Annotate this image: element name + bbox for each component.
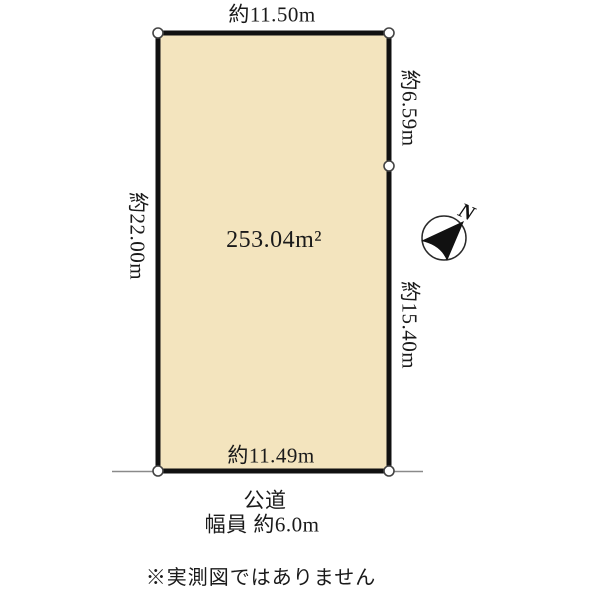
area-label: 253.04m² (226, 228, 322, 252)
top-dimension-label: 約11.50m (228, 5, 315, 26)
boundary-point-right-mid (384, 161, 394, 171)
road-name-label: 公道 (244, 491, 287, 512)
right-upper-dimension-label: 約6.59m (399, 69, 420, 146)
boundary-point-top-left (153, 28, 163, 38)
boundary-point-bottom-left (153, 466, 163, 476)
boundary-point-bottom-right (384, 466, 394, 476)
land-plot-diagram: N 約11.50m 約22.00m 約6.59m 約15.40m 約11.49m… (0, 0, 600, 600)
left-dimension-label: 約22.00m (127, 192, 148, 280)
bottom-dimension-label: 約11.49m (227, 446, 314, 467)
disclaimer-note: ※実測図ではありません (146, 568, 376, 588)
compass: N (421, 197, 479, 261)
right-lower-dimension-label: 約15.40m (399, 281, 420, 369)
boundary-point-top-right (384, 28, 394, 38)
diagram-canvas: N (0, 0, 600, 600)
road-width-label: 幅員 約6.0m (205, 515, 320, 536)
